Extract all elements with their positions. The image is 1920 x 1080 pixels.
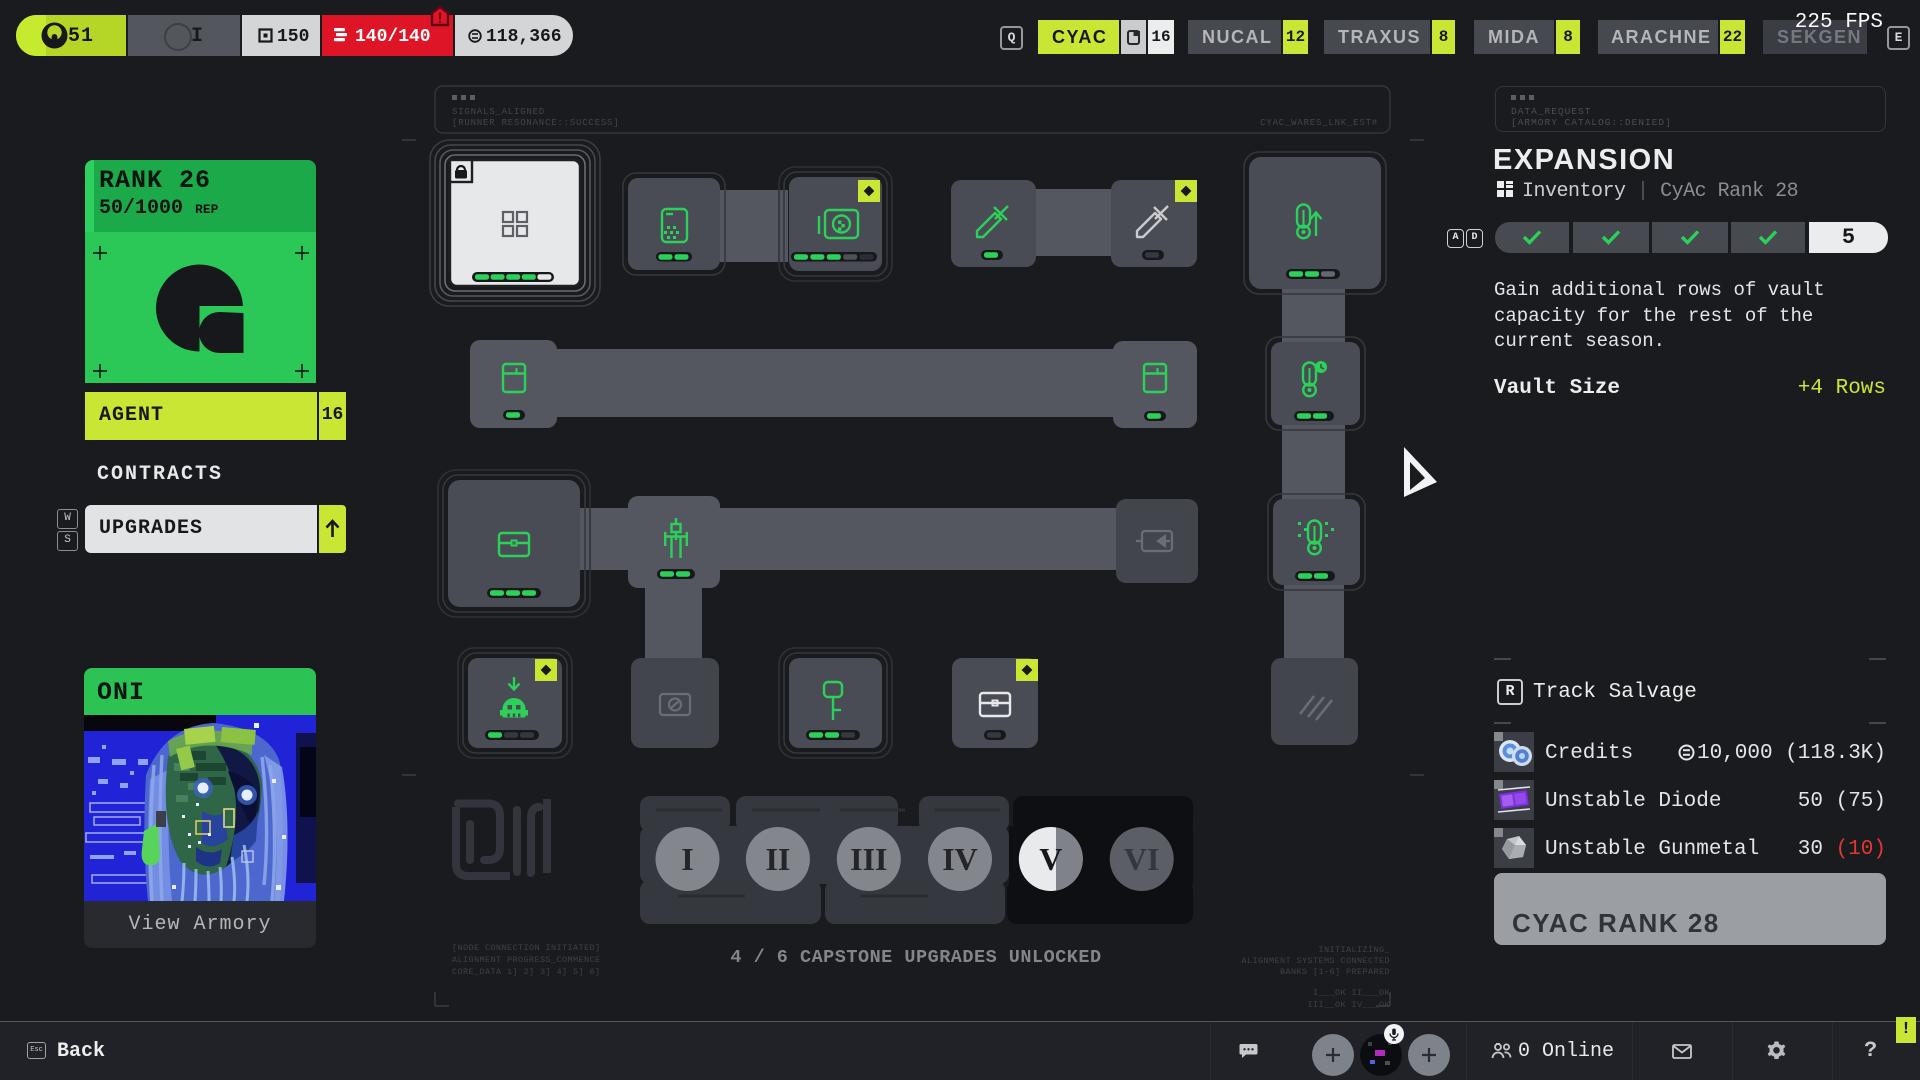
svg-text:VI: VI [1124, 841, 1160, 877]
svg-text:ALIGNMENT SYSTEMS CONNECTED: ALIGNMENT SYSTEMS CONNECTED [1241, 956, 1390, 966]
svg-text:SIGNALS_ALIGNED: SIGNALS_ALIGNED [452, 107, 545, 117]
svg-text:IV: IV [942, 841, 978, 877]
svg-text:V: V [1039, 841, 1062, 877]
svg-text:CYAC_WARES_LNK_EST#: CYAC_WARES_LNK_EST# [1260, 118, 1378, 128]
svg-text:ALIGNMENT PROGRESS_COMMENCE: ALIGNMENT PROGRESS_COMMENCE [452, 955, 601, 965]
svg-text:II: II [765, 841, 790, 877]
svg-text:III: III [850, 841, 887, 877]
svg-text:CORE_DATA 1] 2] 3] 4] 5] 6]: CORE_DATA 1] 2] 3] 4] 5] 6] [452, 967, 601, 977]
svg-text:BANKS [1-6] PREPARED: BANKS [1-6] PREPARED [1280, 967, 1390, 977]
svg-text:4 / 6 CAPSTONE UPGRADES UNLOCK: 4 / 6 CAPSTONE UPGRADES UNLOCKED [730, 947, 1101, 968]
svg-text:[RUNNER RESONANCE::SUCCESS]: [RUNNER RESONANCE::SUCCESS] [452, 118, 619, 128]
svg-text:I: I [681, 841, 693, 877]
svg-text:[NODE CONNECTION INITIATED]: [NODE CONNECTION INITIATED] [452, 943, 601, 953]
svg-text:I___OK II___OK: I___OK II___OK [1313, 988, 1391, 998]
svg-text:III__OK IV___OK: III__OK IV___OK [1307, 1000, 1390, 1010]
svg-text:INITIALIZING_: INITIALIZING_ [1318, 945, 1390, 955]
